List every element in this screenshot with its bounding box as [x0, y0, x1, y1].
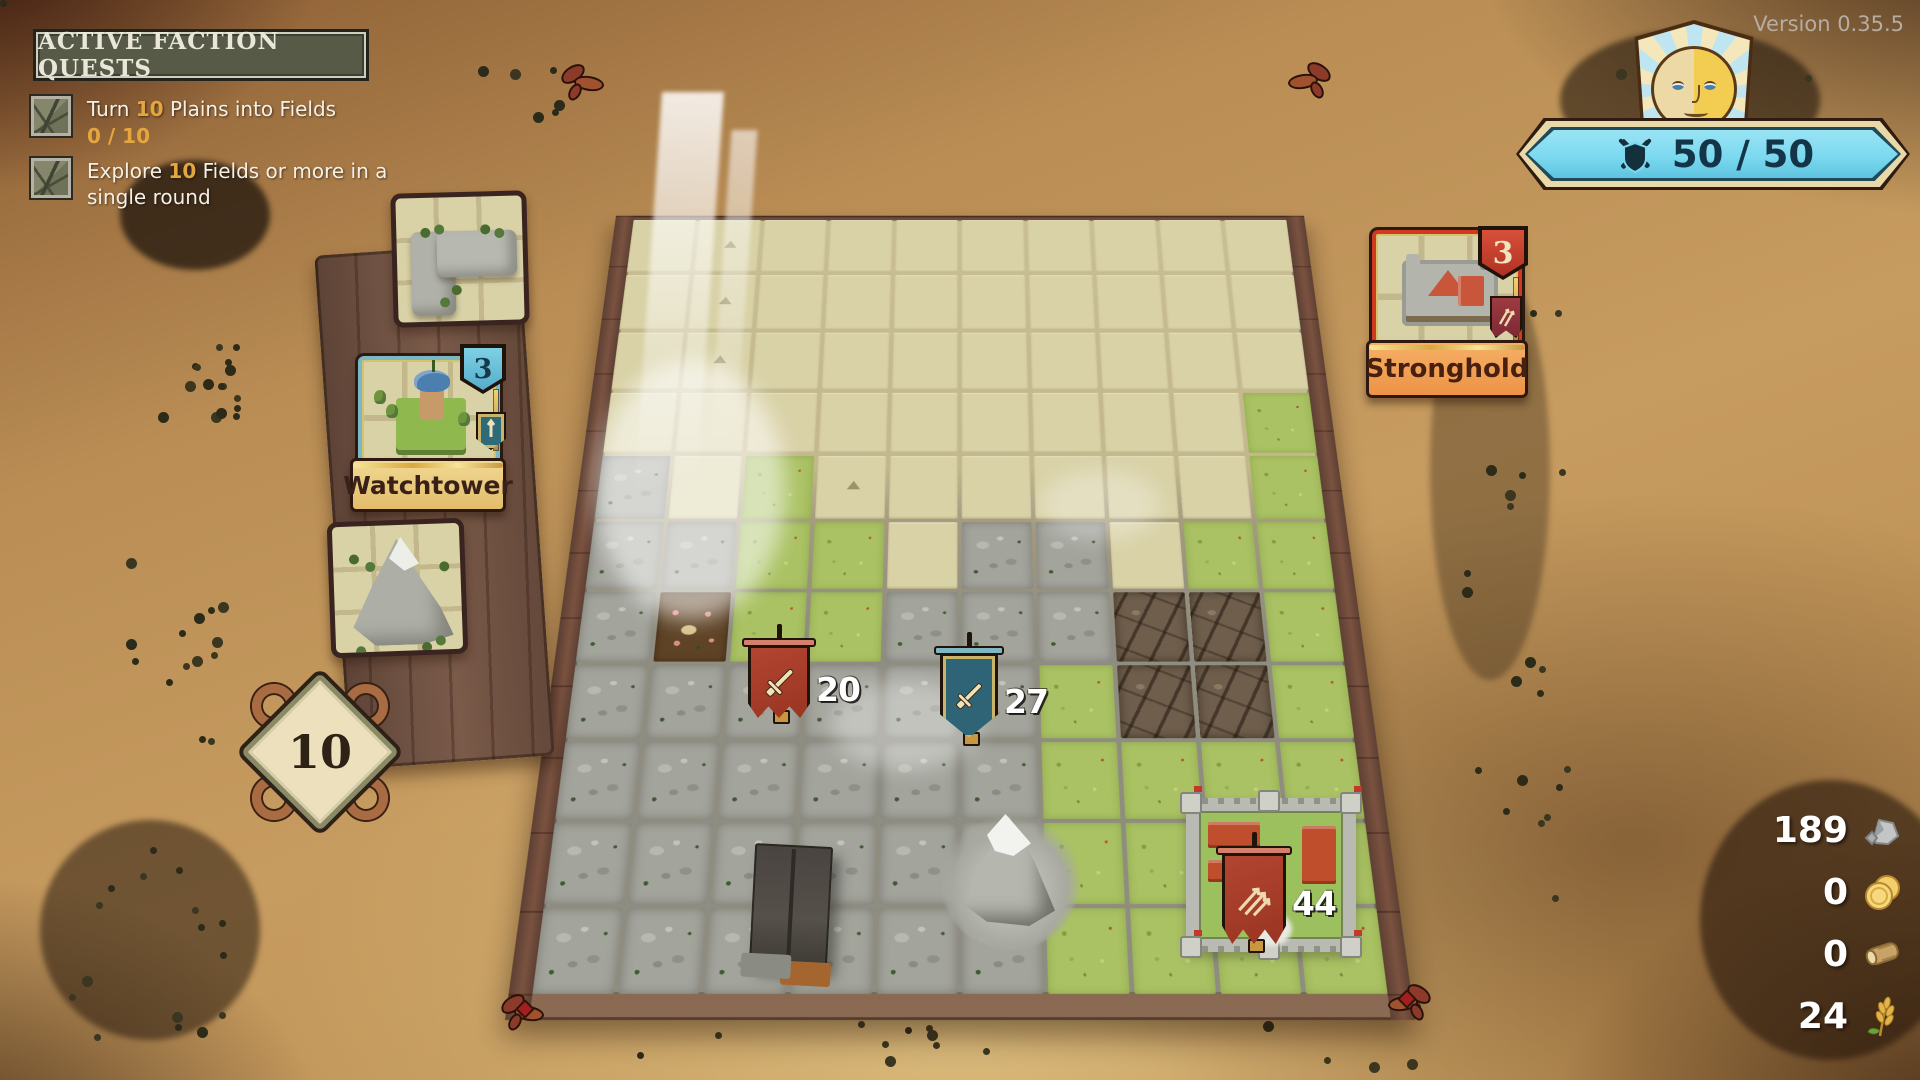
board-tile-crevice[interactable]	[1117, 665, 1196, 738]
board-corner-ornament	[560, 62, 612, 102]
quest-item: Explore 10 Fields or more in a single ro…	[31, 158, 417, 210]
fog-haze	[596, 360, 786, 620]
flag-sword-icon	[748, 645, 810, 718]
board-tile-grass[interactable]	[808, 592, 883, 661]
board-tile-unexplored[interactable]	[1159, 220, 1226, 272]
board-tile-rock[interactable]	[618, 908, 706, 994]
board-corner-ornament	[1380, 982, 1432, 1022]
board-tile-unexplored[interactable]	[1230, 275, 1300, 330]
resource-value: 24	[1798, 996, 1848, 1037]
board-tile-grass[interactable]	[1264, 592, 1344, 661]
board-tile-rock[interactable]	[628, 823, 713, 904]
board-tile-unexplored[interactable]	[752, 333, 821, 390]
game-screen: { "version_label": "Version 0.35.5", "qu…	[0, 0, 1920, 1080]
board-tile-grass[interactable]	[1272, 665, 1354, 738]
board-tile-unexplored[interactable]	[1173, 393, 1245, 453]
board-tile-rock[interactable]	[637, 742, 720, 819]
board-tile-rock[interactable]	[718, 742, 799, 819]
board-tile-unexplored[interactable]	[1236, 333, 1308, 390]
round-marker-value: 10	[288, 725, 352, 779]
board-tile-rock[interactable]	[532, 908, 622, 994]
board-tile-unexplored[interactable]	[1163, 275, 1232, 330]
board-tile-unexplored[interactable]	[1102, 393, 1173, 453]
board-tile-unexplored[interactable]	[895, 220, 958, 272]
quest-item: Turn 10 Plains into Fields 0 / 10	[31, 96, 336, 148]
quest-progress: 0 / 10	[87, 124, 336, 148]
board-tile-unexplored[interactable]	[962, 220, 1025, 272]
tree-dot	[0, 0, 7, 7]
unit-flag[interactable]: 27	[940, 648, 998, 738]
board-tile-unexplored[interactable]	[756, 275, 824, 330]
board-tile-unexplored[interactable]	[1178, 456, 1252, 519]
round-marker: 10	[250, 682, 390, 822]
card-name: Watchtower	[343, 471, 513, 500]
board-corner-ornament	[1280, 60, 1332, 100]
board-tile-unexplored[interactable]	[1168, 333, 1239, 390]
board-tile-unexplored[interactable]	[1028, 220, 1093, 272]
board-tile-rock[interactable]	[645, 665, 726, 738]
watchtower-icon	[420, 386, 444, 420]
stone-icon	[1860, 808, 1904, 852]
board-tile-unexplored[interactable]	[892, 333, 958, 390]
board-tile-unexplored[interactable]	[1099, 333, 1168, 390]
board-tile-unexplored[interactable]	[890, 393, 958, 453]
board-tile-unexplored[interactable]	[818, 393, 887, 453]
board-tile-unexplored[interactable]	[962, 456, 1031, 519]
smoke-wisp	[1040, 470, 1160, 540]
board-tile-grass[interactable]	[1183, 522, 1259, 588]
board-tile-unexplored[interactable]	[962, 393, 1030, 453]
log-icon	[1860, 932, 1904, 976]
unit-flag[interactable]: 44	[1222, 848, 1286, 944]
board-tile-unexplored[interactable]	[815, 456, 886, 519]
board-tile-grass[interactable]	[1243, 393, 1317, 453]
board-tile-unexplored[interactable]	[1093, 220, 1159, 272]
board-tile-unexplored[interactable]	[1031, 333, 1099, 390]
unit-strength: 20	[816, 670, 860, 709]
board-tile-crevice[interactable]	[1113, 592, 1190, 661]
board-tile-unexplored[interactable]	[1032, 393, 1101, 453]
board-tile-unexplored[interactable]	[825, 275, 891, 330]
morale-banner: 50 / 50	[1516, 118, 1910, 190]
unit-strength: 27	[1004, 682, 1048, 721]
quest-checkbox-icon[interactable]	[31, 158, 71, 198]
card-name-plate: Stronghold	[1366, 340, 1528, 398]
resource-row: 0	[1773, 930, 1904, 978]
unit-flag[interactable]: 20	[748, 640, 810, 718]
board-tile-grass[interactable]	[1250, 456, 1326, 519]
wheat-icon	[1860, 994, 1904, 1038]
quest-checkbox-icon[interactable]	[31, 96, 71, 136]
board-tile-crevice[interactable]	[1194, 665, 1275, 738]
resource-row: 189	[1773, 806, 1904, 854]
stronghold-icon	[1402, 260, 1498, 326]
board-tile-grass[interactable]	[1040, 665, 1117, 738]
tile-preview-card-mountain[interactable]	[327, 518, 469, 659]
mountain	[935, 806, 1085, 956]
board-tile-unexplored[interactable]	[822, 333, 890, 390]
quest-text: Turn 10 Plains into Fields	[87, 96, 336, 122]
board-tile-unexplored[interactable]	[828, 220, 893, 272]
resource-row: 0	[1773, 868, 1904, 916]
board-tile-rock[interactable]	[566, 665, 648, 738]
board-tile-unexplored[interactable]	[893, 275, 958, 330]
coins-icon	[1860, 870, 1904, 914]
flag-sword-icon	[940, 653, 998, 738]
quest-panel-title-label: ACTIVE FACTION QUESTS	[38, 28, 364, 82]
board-tile-unexplored[interactable]	[887, 522, 958, 588]
shield-swords-icon	[1612, 131, 1658, 177]
board-corner-ornament	[500, 992, 552, 1032]
board-tile-unexplored[interactable]	[1096, 275, 1164, 330]
resource-panel: 189 0 0 24	[1773, 806, 1904, 1040]
card-name: Stronghold	[1366, 354, 1529, 384]
unit-strength: 44	[1292, 884, 1336, 923]
board-tile-unexplored[interactable]	[1029, 275, 1095, 330]
version-label: Version 0.35.5	[1753, 12, 1904, 36]
board-tile-rock[interactable]	[555, 742, 640, 819]
board-tile-unexplored[interactable]	[962, 275, 1027, 330]
dark-terrain-blob	[40, 820, 260, 1040]
quest-panel-title: ACTIVE FACTION QUESTS	[36, 32, 366, 78]
tile-preview-card-wall[interactable]	[390, 190, 529, 328]
flag-arrows-icon	[1222, 853, 1286, 944]
quest-text: Explore 10 Fields or more in a single ro…	[87, 158, 417, 210]
morale-value: 50 / 50	[1672, 133, 1814, 176]
board-tile-grass[interactable]	[811, 522, 884, 588]
resource-value: 0	[1823, 934, 1848, 975]
board-tile-rock[interactable]	[962, 522, 1033, 588]
board-tile-unexplored[interactable]	[962, 333, 1028, 390]
board-tile-rock[interactable]	[1038, 592, 1113, 661]
card-name-plate: Watchtower	[350, 458, 506, 512]
board-tile-grass[interactable]	[1257, 522, 1335, 588]
board-tile-crevice[interactable]	[1189, 592, 1267, 661]
board-tile-unexplored[interactable]	[1225, 220, 1294, 272]
board-tile-unexplored[interactable]	[889, 456, 958, 519]
resource-value: 189	[1773, 810, 1848, 851]
resource-value: 0	[1823, 872, 1848, 913]
board-tile-rock[interactable]	[544, 823, 631, 904]
resource-row: 24	[1773, 992, 1904, 1040]
board-tile-unexplored[interactable]	[761, 220, 827, 272]
church-building	[749, 843, 833, 969]
